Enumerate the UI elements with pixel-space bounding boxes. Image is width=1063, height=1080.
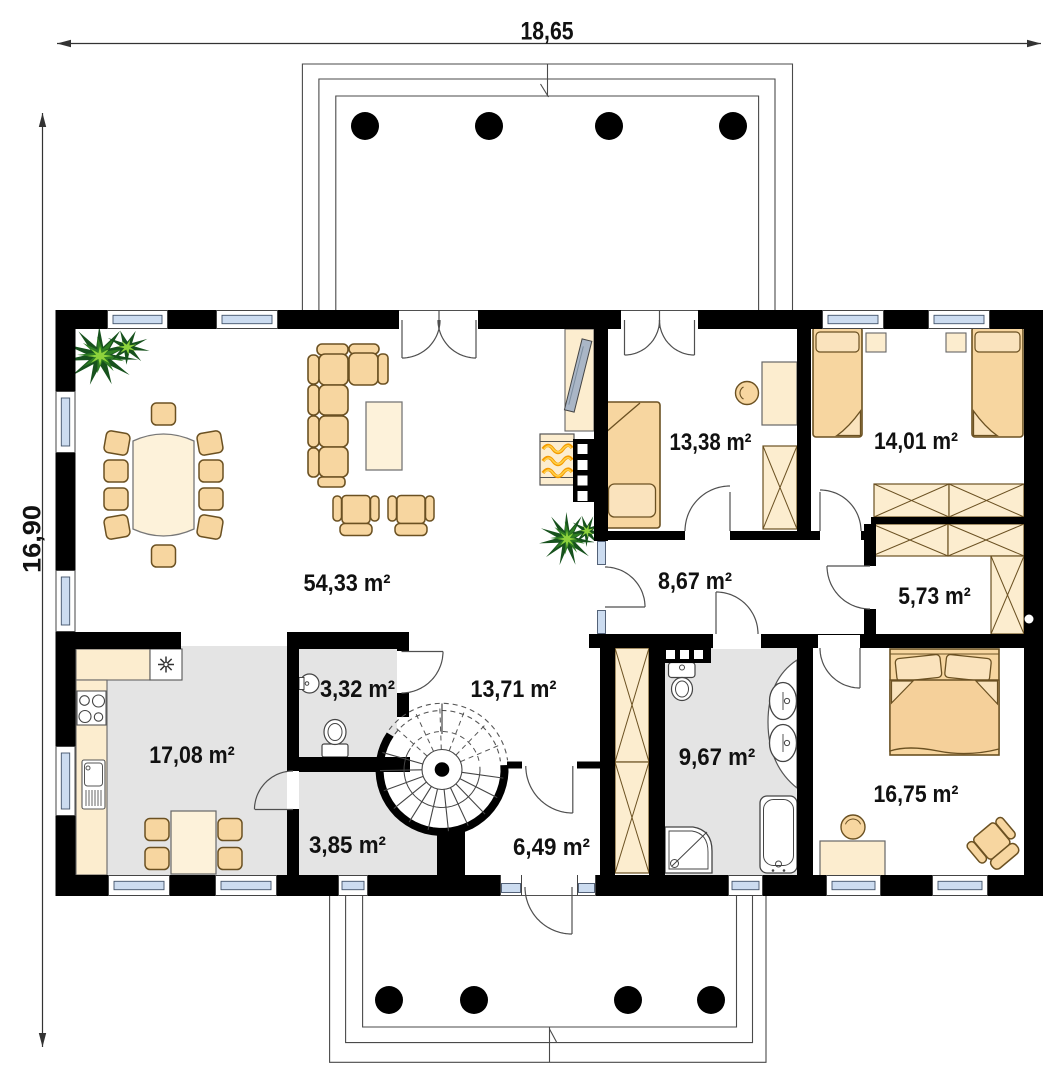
svg-text:18,65: 18,65 [521, 18, 574, 46]
svg-text:9,67 m²: 9,67 m² [679, 744, 756, 771]
svg-text:3,85 m²: 3,85 m² [309, 832, 386, 859]
svg-text:8,67 m²: 8,67 m² [658, 568, 732, 595]
svg-text:6,49 m²: 6,49 m² [513, 834, 590, 861]
svg-text:14,01 m²: 14,01 m² [874, 428, 958, 455]
svg-text:5,73 m²: 5,73 m² [898, 583, 971, 610]
svg-text:16,75 m²: 16,75 m² [874, 781, 959, 808]
svg-text:13,71 m²: 13,71 m² [471, 676, 557, 703]
svg-text:54,33 m²: 54,33 m² [304, 570, 391, 597]
svg-text:3,32 m²: 3,32 m² [320, 676, 395, 703]
svg-text:16,90: 16,90 [19, 505, 47, 573]
svg-text:13,38 m²: 13,38 m² [670, 429, 752, 456]
svg-text:17,08 m²: 17,08 m² [149, 742, 235, 769]
